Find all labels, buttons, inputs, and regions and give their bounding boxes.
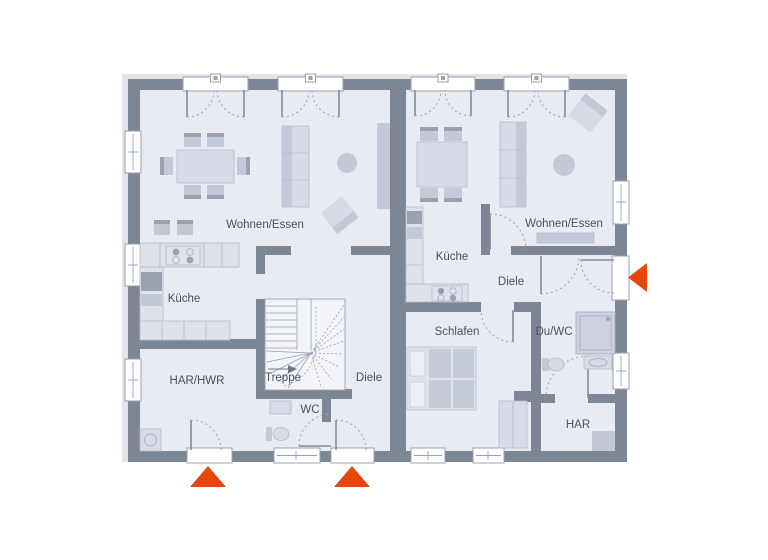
room-label-wc: WC: [300, 404, 319, 416]
room-label-diele-left: Diele: [356, 372, 382, 384]
window: [613, 353, 629, 389]
pouf: [337, 153, 357, 173]
room-label-du-wc: Du/WC: [535, 326, 572, 338]
wardrobe: [499, 401, 527, 448]
room-label-wohnen-essen-left: Wohnen/Essen: [226, 219, 304, 231]
cabinet: [377, 123, 390, 209]
room-label-kueche-right: Küche: [436, 251, 469, 263]
shelf-unit: [282, 126, 309, 207]
window: [125, 359, 141, 401]
entrance-marker-icon: [334, 466, 370, 487]
window: [411, 448, 445, 463]
floorplan-image: Wohnen/Essen Küche HAR/HWR Treppe Diele …: [0, 0, 768, 560]
room-label-har-hwr: HAR/HWR: [170, 375, 225, 387]
pouf: [553, 154, 575, 176]
room-label-kueche-left: Küche: [168, 293, 201, 305]
window: [274, 448, 320, 463]
sideboard: [537, 233, 594, 243]
floorplan-svg: Wohnen/Essen Küche HAR/HWR Treppe Diele …: [0, 0, 768, 560]
window: [125, 131, 141, 173]
entrance-marker-icon: [190, 466, 226, 487]
washer: [140, 429, 161, 451]
window: [125, 244, 141, 286]
window: [473, 448, 504, 463]
room-label-diele-right: Diele: [498, 276, 524, 288]
shelf-unit: [500, 122, 526, 207]
window: [613, 181, 629, 224]
room-label-treppe: Treppe: [265, 372, 301, 384]
room-label-har: HAR: [566, 419, 590, 431]
har-cabinet: [592, 431, 615, 451]
room-label-wohnen-essen-right: Wohnen/Essen: [525, 218, 603, 230]
entrance-marker-icon: [628, 263, 647, 292]
room-label-schlafen: Schlafen: [435, 326, 480, 338]
double-bed: [407, 347, 476, 410]
